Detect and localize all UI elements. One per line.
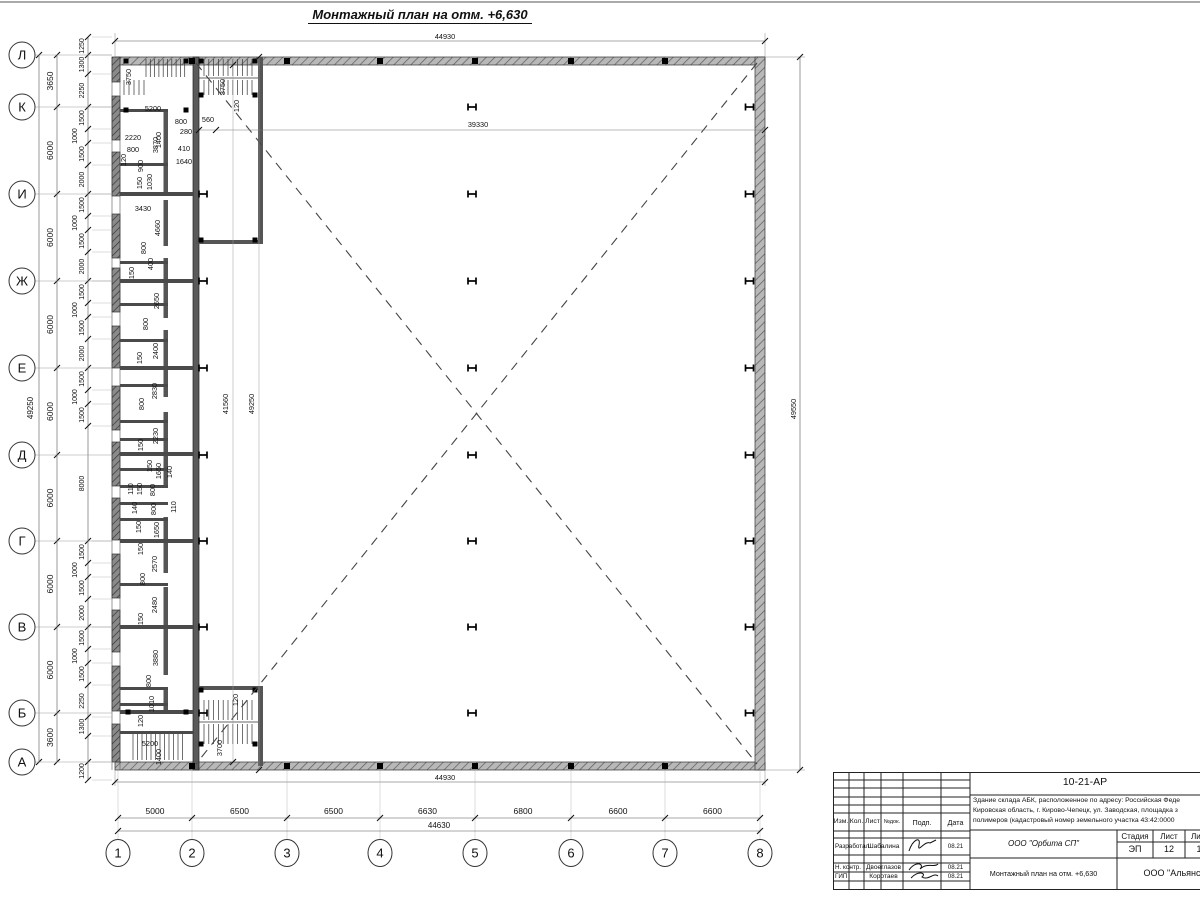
chain-dim: 2250 — [79, 693, 86, 709]
plan-dim-label: 150 — [127, 267, 136, 279]
grid-label-col: 8 — [756, 846, 763, 861]
axis-spacing-dim: 6500 — [324, 806, 343, 816]
plan-dim-label: 2570 — [150, 556, 159, 572]
grid-label-row: Д — [18, 448, 27, 463]
plan-dim-label: 41560 — [221, 394, 230, 414]
plan-dim-label: 3430 — [135, 204, 151, 213]
plan-dim-label: 800 — [148, 484, 157, 496]
plan-dim-label: 3750 — [124, 69, 133, 85]
partition-wall — [120, 539, 193, 543]
chain-dim: 1000 — [72, 389, 79, 405]
chain-dim: 1000 — [72, 302, 79, 318]
chain-dim: 1500 — [79, 407, 86, 423]
axis-spacing-dim: 5000 — [146, 806, 165, 816]
plan-dim-label: 2400 — [151, 343, 160, 359]
plan-dim-label: 800 — [139, 242, 148, 254]
plan-dim-label: 800 — [149, 503, 158, 515]
plan-dim-label: 3750 — [218, 79, 227, 95]
plan-dim-label: 150 — [145, 460, 154, 472]
chain-dim: 1000 — [72, 562, 79, 578]
plan-dim-label: 400 — [146, 258, 155, 270]
col-header-ndok: №док. — [881, 819, 903, 825]
chain-dim: 1500 — [79, 371, 86, 387]
corridor-wall — [164, 587, 169, 675]
axis-spacing-dim: 6800 — [514, 806, 533, 816]
left-wall-pier — [112, 326, 120, 368]
grid-label-col: 1 — [114, 846, 121, 861]
plan-dim-label: 800 — [144, 675, 153, 687]
plan-dim-label: 120 — [119, 154, 128, 166]
left-wall-pier — [112, 442, 120, 486]
building-walls — [112, 57, 765, 770]
chain-dim: 1250 — [79, 38, 86, 54]
steel-column-symbol — [199, 191, 207, 198]
chain-dim: 1500 — [79, 146, 86, 162]
steel-column-symbol — [746, 538, 754, 545]
dimension-labels: 3750520014002220800387012090080028056041… — [119, 32, 798, 782]
column-square — [377, 763, 383, 769]
steel-column-symbol — [468, 278, 476, 285]
col-header-list: Лист — [864, 818, 881, 825]
partition-wall — [120, 710, 193, 714]
steel-column-symbol — [199, 452, 207, 459]
chain-dim: 2000 — [79, 346, 86, 362]
plan-dim-label: 49250 — [247, 394, 256, 414]
plan-dim-label: 39330 — [468, 120, 488, 129]
plan-dim-label: 2220 — [125, 133, 141, 142]
steel-column-symbol — [199, 365, 207, 372]
left-wall-pier — [112, 610, 120, 652]
chain-dim: 1500 — [79, 233, 86, 249]
partition-wall — [120, 625, 193, 629]
chain-dim: 1500 — [79, 630, 86, 646]
plan-dim-label: 150 — [134, 521, 143, 533]
column-square — [472, 763, 478, 769]
column-square — [126, 710, 131, 715]
left-wall-pier — [112, 666, 120, 711]
partition-wall — [120, 502, 168, 505]
sheet-value: 12 — [1153, 844, 1185, 854]
left-wall-pier — [112, 96, 120, 140]
name-developer: Шабалина — [864, 843, 903, 850]
steel-column-symbol — [468, 624, 476, 631]
grid-label-row: Ж — [16, 274, 28, 289]
axis-spacing-dim: 6630 — [418, 806, 437, 816]
stage-value: ЭП — [1117, 844, 1153, 854]
axis-spacing-dim: 6500 — [230, 806, 249, 816]
plan-dim-label: 150 — [135, 483, 144, 495]
object-address-line1: Здание склада АБК, расположенное по адре… — [973, 797, 1180, 804]
chain-dim: 2000 — [79, 259, 86, 275]
company-name: ООО "Альянс — [1117, 868, 1200, 878]
plan-dim-label: 3870 — [151, 137, 160, 153]
left-wall-pier — [112, 554, 120, 598]
axis-spacing-dim: 6000 — [45, 228, 55, 247]
grid-label-col: 3 — [283, 846, 290, 861]
steel-column-symbol — [746, 710, 754, 717]
chain-dim: 1000 — [72, 128, 79, 144]
corridor-wall — [164, 517, 169, 573]
plan-dim-label: 150 — [135, 352, 144, 364]
chain-dim: 1300 — [79, 719, 86, 735]
plan-dim-label: 2230 — [151, 428, 160, 444]
partition-wall — [120, 452, 193, 456]
plan-dim-label: 800 — [137, 398, 146, 410]
plan-dim-label: 110 — [169, 501, 178, 513]
plan-dim-label: 5200 — [142, 739, 158, 748]
column-square — [199, 93, 204, 98]
partition-wall — [120, 366, 193, 370]
axis-spacing-dim: 6000 — [45, 660, 55, 679]
partition-wall — [120, 339, 168, 342]
plan-dim-label: 5200 — [145, 104, 161, 113]
plan-dim-label: 1650 — [154, 463, 163, 479]
grid-label-row: А — [18, 755, 27, 770]
left-wall-pier — [112, 386, 120, 430]
steel-column-symbol — [746, 624, 754, 631]
column-square — [199, 238, 204, 243]
column-square — [184, 59, 189, 64]
column-square — [377, 58, 383, 64]
plan-dim-label: 120 — [232, 100, 241, 112]
date-ncontrol: 08.21 — [941, 864, 970, 871]
grid-label-row: Г — [18, 534, 25, 549]
sheet-header: Лист — [1153, 832, 1185, 841]
plan-dim-label: 44930 — [435, 773, 455, 782]
object-address-line2: Кировская область, г. Кирово-Чепецк, ул.… — [973, 807, 1178, 814]
sheets-value: 1 — [1185, 844, 1200, 854]
chain-dim: 1500 — [79, 284, 86, 300]
partition-wall — [120, 384, 168, 387]
sheet-name: Монтажный план на отм. +6,630 — [970, 869, 1117, 878]
grid-label-col: 2 — [188, 846, 195, 861]
grid-label-row: Е — [18, 361, 27, 376]
grid-label-row: Б — [18, 706, 27, 721]
partition-wall — [120, 703, 168, 706]
left-wall-pier — [112, 268, 120, 312]
steel-column-symbol — [468, 710, 476, 717]
plan-dim-label: 800 — [175, 117, 187, 126]
plan-dim-label: 1010 — [147, 696, 156, 712]
col-header-data: Дата — [941, 818, 970, 827]
name-ncontrol: Двоеглазов — [864, 864, 903, 871]
plan-dim-label: 900 — [136, 160, 145, 172]
plan-dim-label: 150 — [135, 177, 144, 189]
steel-column-symbol — [468, 191, 476, 198]
column-square — [568, 58, 574, 64]
sheets-header: Листов — [1185, 832, 1200, 841]
chain-dim: 1500 — [79, 110, 86, 126]
plan-dim-label: 2650 — [152, 293, 161, 309]
column-square — [253, 742, 258, 747]
col-header-izm: Изм. — [833, 818, 849, 825]
steel-column-symbol — [746, 365, 754, 372]
plan-dim-label: 1030 — [145, 174, 154, 190]
plan-dim-label: 150 — [136, 613, 145, 625]
steel-column-symbol — [746, 278, 754, 285]
column-square — [253, 238, 258, 243]
axis-spacing-dim: 6000 — [45, 574, 55, 593]
column-square — [199, 688, 204, 693]
column-square — [199, 742, 204, 747]
chain-dim: 1300 — [79, 57, 86, 73]
column-square — [568, 763, 574, 769]
col-header-podp: Подп. — [903, 818, 941, 827]
chain-dim: 1200 — [79, 763, 86, 779]
grid-label-row: В — [18, 620, 27, 635]
chain-dim: 2250 — [79, 83, 86, 99]
plan-dim-label: 2480 — [150, 597, 159, 613]
plan-dim-label: 3880 — [151, 650, 160, 666]
axis-spacing-dim: 6600 — [609, 806, 628, 816]
left-wall-pier — [112, 498, 120, 540]
steel-column-symbol — [746, 452, 754, 459]
column-square — [189, 763, 195, 769]
plan-dim-label: 150 — [136, 543, 145, 555]
grid-label-row: К — [18, 100, 26, 115]
date-developer: 08.21 — [941, 843, 970, 850]
steel-column-symbol — [746, 104, 754, 111]
steel-column-symbol — [746, 191, 754, 198]
axis-spacing-dim: 3650 — [45, 71, 55, 90]
chain-dim: 1500 — [79, 666, 86, 682]
plan-dim-label: 49550 — [789, 399, 798, 419]
partition-wall — [120, 261, 168, 264]
column-symbols — [189, 58, 754, 769]
grid-label-col: 6 — [567, 846, 574, 861]
plan-dim-label: 4660 — [153, 220, 162, 236]
col-header-kol: Кол. — [849, 818, 864, 825]
corridor-wall — [164, 112, 169, 196]
axis-spacing-dim: 6000 — [45, 141, 55, 160]
corridor-wall — [164, 258, 169, 318]
plan-dim-label: 1640 — [176, 157, 192, 166]
design-org: ООО "Орбита СП" — [970, 839, 1117, 848]
column-square — [284, 763, 290, 769]
column-square — [253, 93, 258, 98]
col-total-dim: 44630 — [428, 821, 451, 830]
column-square — [662, 58, 668, 64]
partition-wall — [120, 420, 168, 423]
column-square — [124, 59, 129, 64]
chain-dim: 2000 — [79, 605, 86, 621]
partition-wall — [120, 192, 193, 196]
chain-dim: 8000 — [79, 476, 86, 492]
plan-dim-label: 140 — [165, 466, 174, 478]
partition-wall — [120, 518, 168, 521]
plan-dim-label: 120 — [136, 715, 145, 727]
doc-code: 10-21-АР — [970, 776, 1200, 788]
plan-dim-label: 800 — [138, 573, 147, 585]
column-square — [662, 763, 668, 769]
steel-column-symbol — [468, 104, 476, 111]
column-square — [124, 108, 129, 113]
steel-column-symbol — [199, 710, 207, 717]
plan-dim-label: 2830 — [150, 383, 159, 399]
corridor-wall — [164, 689, 169, 713]
grid-label-row: Л — [18, 48, 27, 63]
object-address-line3: полимеров (кадастровый номер земельного … — [973, 817, 1175, 824]
grid-label-col: 4 — [376, 846, 383, 861]
chain-dim: 1500 — [79, 197, 86, 213]
name-gip: Коротаев — [864, 873, 903, 880]
stage-header: Стадия — [1117, 832, 1153, 841]
column-square — [184, 710, 189, 715]
steel-column-symbol — [199, 538, 207, 545]
plan-dim-label: 1650 — [152, 522, 161, 538]
grid-label-col: 7 — [661, 846, 668, 861]
column-square — [189, 58, 195, 64]
grid-label-row: И — [17, 187, 26, 202]
plan-dim-label: 110 — [126, 483, 135, 495]
role-ncontrol: Н. контр. — [835, 864, 861, 871]
chain-dim: 1000 — [72, 648, 79, 664]
plan-dim-label: 3700 — [215, 740, 224, 756]
left-wall-pier — [112, 724, 120, 762]
column-square — [284, 58, 290, 64]
axis-spacing-dim: 3600 — [45, 728, 55, 747]
plan-dim-label: 280 — [180, 127, 192, 136]
corridor-wall — [164, 200, 169, 246]
left-wall-pier — [112, 214, 120, 258]
steel-column-symbol — [468, 538, 476, 545]
plan-dim-label: 44930 — [435, 32, 455, 41]
plan-dim-label: 800 — [127, 145, 139, 154]
axis-spacing-dim: 6000 — [45, 402, 55, 421]
row-total-dim: 49250 — [26, 396, 35, 419]
drawing-sheet: { "title": "Монтажный план на отм. +6,63… — [0, 0, 1200, 900]
date-gip: 08.21 — [941, 873, 970, 880]
plan-dim-label: 120 — [231, 694, 240, 706]
partition-wall — [120, 731, 193, 734]
chain-dim: 1000 — [72, 215, 79, 231]
chain-dim: 1500 — [79, 320, 86, 336]
plan-dim-label: 560 — [202, 115, 214, 124]
left-wall-pier — [112, 57, 120, 82]
steel-column-symbol — [468, 452, 476, 459]
steel-column-symbol — [468, 365, 476, 372]
chain-dim: 1500 — [79, 544, 86, 560]
plan-dim-label: 410 — [178, 144, 190, 153]
steel-column-symbol — [199, 624, 207, 631]
chain-dim: 2000 — [79, 172, 86, 188]
plan-dim-label: 1400 — [154, 749, 163, 765]
plan-dim-label: 800 — [141, 318, 150, 330]
inner-wall — [193, 57, 199, 770]
column-square — [184, 108, 189, 113]
steel-column-symbol — [199, 278, 207, 285]
axis-spacing-dim: 6600 — [703, 806, 722, 816]
column-square — [472, 58, 478, 64]
grid-label-col: 5 — [471, 846, 478, 861]
chain-dim: 1500 — [79, 580, 86, 596]
axis-spacing-dim: 6000 — [45, 488, 55, 507]
axis-spacing-dim: 6000 — [45, 315, 55, 334]
column-square — [199, 59, 204, 64]
right-wall — [755, 57, 765, 770]
plan-dim-label: 150 — [136, 439, 145, 451]
role-gip: ГИП — [835, 873, 847, 880]
title-block: 10-21-АР Здание склада АБК, расположенно… — [833, 772, 1200, 890]
plan-dim-label: 140 — [130, 502, 139, 514]
roof-bracing — [196, 63, 757, 764]
floor-plan-canvas: 4925036506000600060006000600060006000360… — [0, 0, 1200, 900]
